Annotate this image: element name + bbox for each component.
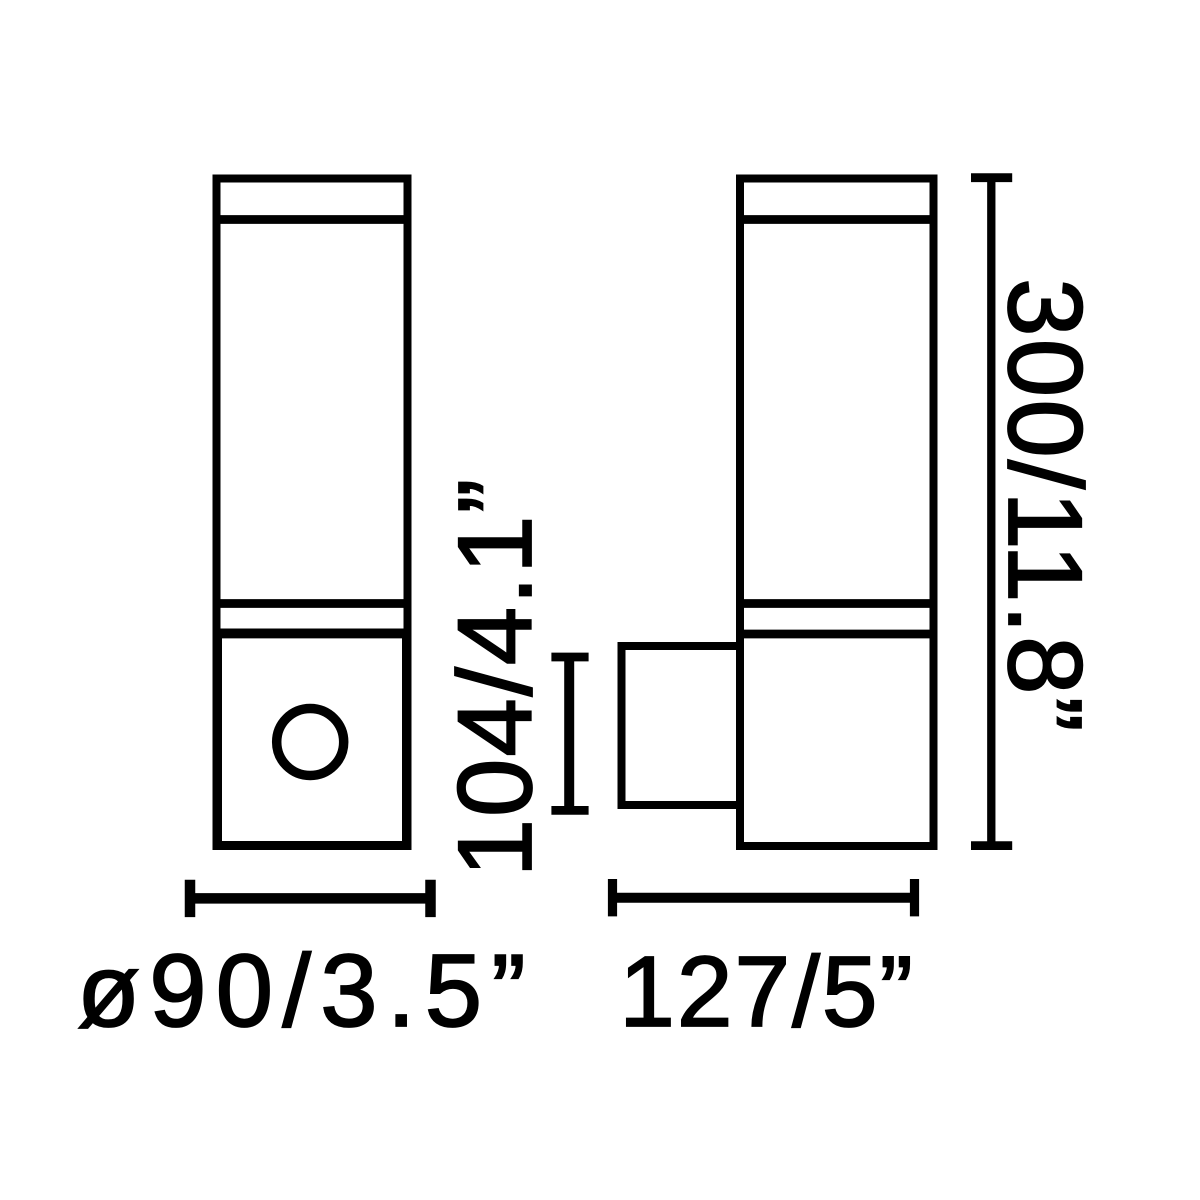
svg-text:300/11.8”: 300/11.8” bbox=[986, 278, 1103, 734]
svg-text:ø90/3.5”: ø90/3.5” bbox=[77, 933, 535, 1048]
svg-text:104/4.1”: 104/4.1” bbox=[437, 477, 554, 878]
svg-text:127/5”: 127/5” bbox=[619, 936, 915, 1048]
